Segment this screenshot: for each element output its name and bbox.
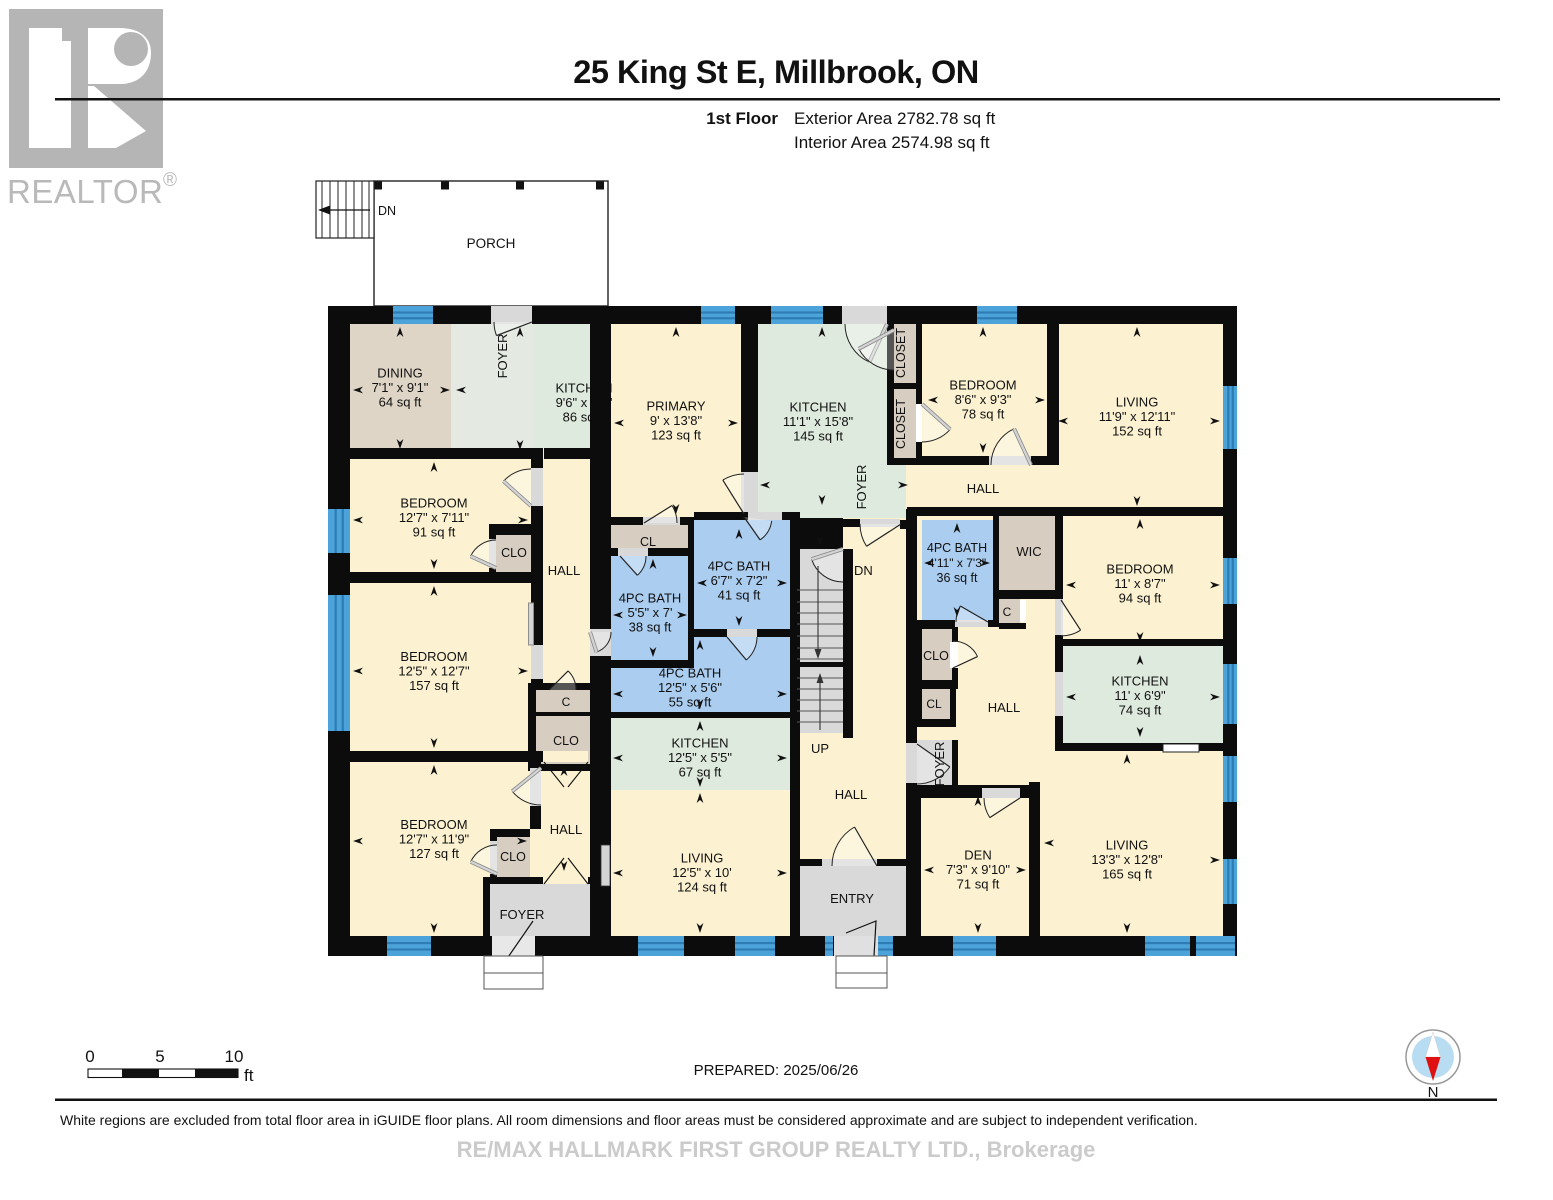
svg-text:HALL: HALL — [967, 481, 1000, 496]
svg-text:KITCHEN: KITCHEN — [671, 736, 728, 751]
svg-text:12'7" x 11'9": 12'7" x 11'9" — [399, 832, 470, 847]
svg-text:BEDROOM: BEDROOM — [1106, 562, 1173, 577]
svg-text:DINING: DINING — [377, 366, 423, 381]
svg-text:Exterior Area 2782.78 sq ft: Exterior Area 2782.78 sq ft — [794, 109, 996, 128]
svg-text:0: 0 — [85, 1047, 94, 1066]
svg-text:74 sq ft: 74 sq ft — [1119, 703, 1162, 718]
svg-text:64 sq ft: 64 sq ft — [379, 395, 422, 410]
svg-text:36 sq ft: 36 sq ft — [937, 571, 979, 585]
svg-text:FOYER: FOYER — [854, 465, 869, 510]
svg-text:CLO: CLO — [500, 850, 526, 864]
svg-text:HALL: HALL — [835, 787, 868, 802]
svg-text:PRIMARY: PRIMARY — [647, 399, 706, 414]
svg-text:CL: CL — [926, 697, 942, 711]
svg-text:FOYER: FOYER — [495, 334, 510, 379]
svg-text:LIVING: LIVING — [681, 851, 724, 866]
svg-text:KITCHEN: KITCHEN — [1111, 674, 1168, 689]
svg-text:Interior Area 2574.98 sq ft: Interior Area 2574.98 sq ft — [794, 133, 990, 152]
svg-text:LIVING: LIVING — [1106, 838, 1149, 853]
svg-text:CLOSET: CLOSET — [894, 399, 908, 449]
svg-text:145 sq ft: 145 sq ft — [793, 429, 843, 444]
svg-text:White regions are excluded fro: White regions are excluded from total fl… — [60, 1112, 1198, 1128]
svg-text:4PC BATH: 4PC BATH — [659, 666, 722, 681]
svg-text:127 sq ft: 127 sq ft — [409, 846, 459, 861]
svg-text:71 sq ft: 71 sq ft — [957, 877, 1000, 892]
svg-text:12'5" x 10': 12'5" x 10' — [672, 865, 731, 880]
svg-text:ENTRY: ENTRY — [830, 891, 874, 906]
svg-text:157 sq ft: 157 sq ft — [409, 678, 459, 693]
svg-text:1st Floor: 1st Floor — [706, 109, 778, 128]
svg-text:N: N — [1428, 1084, 1439, 1101]
svg-text:41 sq ft: 41 sq ft — [718, 588, 761, 603]
svg-text:13'3" x 12'8": 13'3" x 12'8" — [1091, 852, 1163, 867]
svg-text:FOYER: FOYER — [932, 742, 947, 787]
svg-text:BEDROOM: BEDROOM — [400, 496, 467, 511]
svg-text:ft: ft — [244, 1066, 254, 1085]
svg-text:8'6" x 9'3": 8'6" x 9'3" — [955, 392, 1012, 407]
svg-text:HALL: HALL — [550, 822, 583, 837]
svg-text:123 sq ft: 123 sq ft — [651, 428, 701, 443]
svg-text:38 sq ft: 38 sq ft — [629, 620, 672, 635]
svg-text:LIVING: LIVING — [1116, 395, 1159, 410]
svg-text:C: C — [562, 695, 571, 709]
svg-text:7'1" x 9'1": 7'1" x 9'1" — [372, 380, 429, 395]
svg-text:PREPARED: 2025/06/26: PREPARED: 2025/06/26 — [694, 1062, 859, 1079]
svg-text:BEDROOM: BEDROOM — [949, 378, 1016, 393]
svg-text:78 sq ft: 78 sq ft — [962, 407, 1005, 422]
svg-text:12'5" x 5'6": 12'5" x 5'6" — [658, 680, 722, 695]
svg-text:REALTOR: REALTOR — [7, 173, 163, 210]
svg-text:55 sq ft: 55 sq ft — [669, 695, 712, 710]
svg-text:6'7" x 7'2": 6'7" x 7'2" — [711, 573, 768, 588]
svg-text:CLO: CLO — [923, 649, 949, 663]
svg-text:KITCHEN: KITCHEN — [789, 400, 846, 415]
svg-text:7'3" x 9'10": 7'3" x 9'10" — [946, 862, 1010, 877]
svg-text:5'5" x 7': 5'5" x 7' — [628, 605, 673, 620]
svg-text:152 sq ft: 152 sq ft — [1112, 424, 1162, 439]
svg-text:CLO: CLO — [501, 546, 527, 560]
svg-text:67 sq ft: 67 sq ft — [679, 765, 722, 780]
svg-text:C: C — [1003, 605, 1012, 619]
svg-text:94 sq ft: 94 sq ft — [1119, 591, 1162, 606]
svg-text:12'7" x 7'11": 12'7" x 7'11" — [399, 510, 470, 525]
svg-text:®: ® — [163, 170, 177, 191]
svg-text:165 sq ft: 165 sq ft — [1102, 867, 1152, 882]
svg-text:RE/MAX HALLMARK FIRST GROUP RE: RE/MAX HALLMARK FIRST GROUP REALTY LTD.,… — [457, 1137, 1096, 1162]
svg-text:DN: DN — [378, 204, 396, 218]
svg-text:25 King St E, Millbrook, ON: 25 King St E, Millbrook, ON — [573, 54, 978, 90]
svg-text:9' x 13'8": 9' x 13'8" — [650, 413, 703, 428]
svg-text:12'5" x 12'7": 12'5" x 12'7" — [398, 664, 470, 679]
svg-text:4PC BATH: 4PC BATH — [619, 591, 682, 606]
svg-text:UP: UP — [811, 741, 829, 756]
svg-text:HALL: HALL — [548, 563, 581, 578]
svg-text:DN: DN — [854, 563, 873, 578]
svg-text:4PC BATH: 4PC BATH — [927, 541, 987, 555]
svg-text:4'11" x 7'3": 4'11" x 7'3" — [928, 556, 986, 570]
svg-text:PORCH: PORCH — [467, 236, 516, 251]
svg-text:FOYER: FOYER — [500, 907, 545, 922]
svg-text:4PC BATH: 4PC BATH — [708, 559, 771, 574]
svg-text:11' x 6'9": 11' x 6'9" — [1114, 688, 1166, 703]
svg-text:11'1" x 15'8": 11'1" x 15'8" — [783, 414, 854, 429]
svg-text:12'5" x 5'5": 12'5" x 5'5" — [668, 750, 732, 765]
svg-text:HALL: HALL — [988, 700, 1021, 715]
svg-text:91 sq ft: 91 sq ft — [413, 525, 456, 540]
svg-text:10: 10 — [225, 1047, 244, 1066]
svg-text:BEDROOM: BEDROOM — [400, 649, 467, 664]
svg-text:WIC: WIC — [1016, 544, 1041, 559]
svg-text:CL: CL — [640, 535, 656, 549]
svg-text:CLOSET: CLOSET — [894, 328, 908, 378]
svg-text:BEDROOM: BEDROOM — [400, 817, 467, 832]
svg-text:5: 5 — [155, 1047, 164, 1066]
svg-text:11' x 8'7": 11' x 8'7" — [1114, 576, 1166, 591]
svg-text:11'9" x 12'11": 11'9" x 12'11" — [1099, 409, 1176, 424]
svg-text:124 sq ft: 124 sq ft — [677, 880, 727, 895]
svg-text:DEN: DEN — [964, 848, 991, 863]
svg-text:CLO: CLO — [553, 734, 579, 748]
